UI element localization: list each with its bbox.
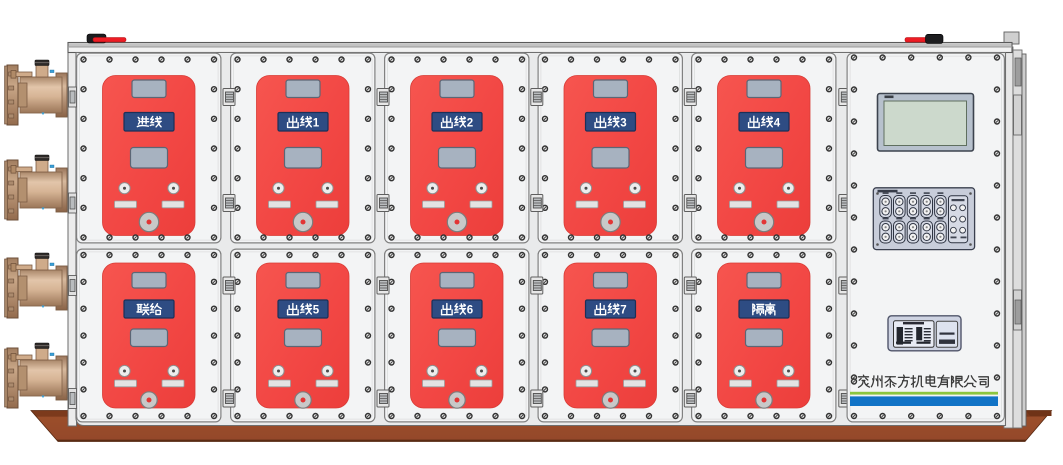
svg-text:3: 3: [620, 117, 626, 129]
svg-text:5: 5: [313, 305, 320, 317]
svg-text:6: 6: [467, 305, 473, 317]
svg-text:1: 1: [313, 117, 320, 129]
svg-text:2: 2: [467, 117, 473, 129]
svg-text:7: 7: [620, 305, 626, 317]
svg-text:4: 4: [774, 117, 781, 129]
